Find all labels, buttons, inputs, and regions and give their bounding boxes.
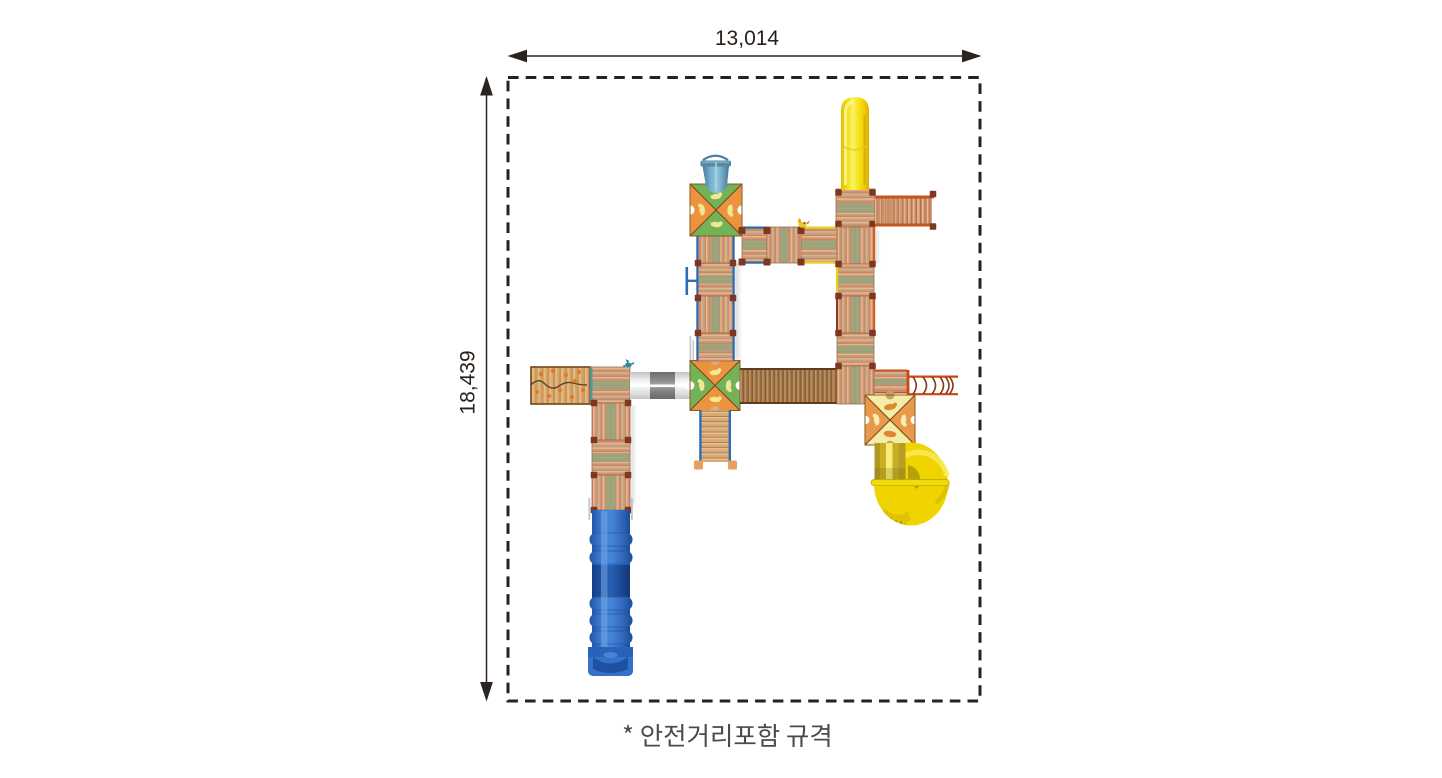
svg-text:13,014: 13,014 <box>715 27 780 50</box>
svg-text:18,439: 18,439 <box>457 350 480 414</box>
